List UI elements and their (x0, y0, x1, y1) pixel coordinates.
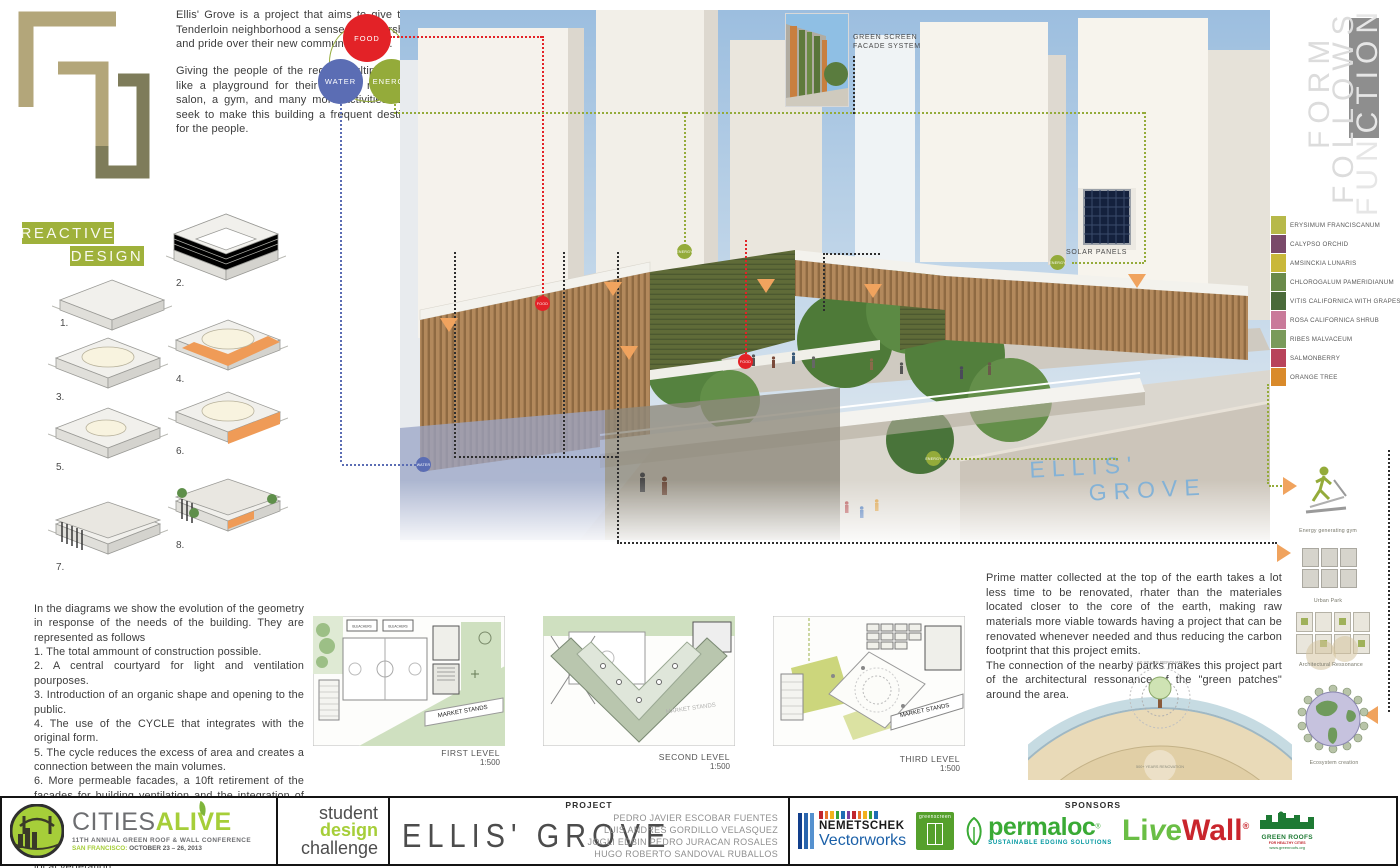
energy-dot-1-label: ENERGY (1049, 261, 1065, 265)
roof-arrow-3 (620, 346, 638, 360)
evolution-item: 2. A central courtyard for light and ven… (34, 659, 304, 688)
alive-wordmark: ALIVE (156, 808, 232, 836)
plant-name: SALMONBERRY (1290, 355, 1340, 362)
livewall-leaf-v: v (1149, 814, 1166, 847)
team-member: JOGLI EDBIN PEDRO JURACAN ROSALES (588, 837, 778, 849)
food-line-v2 (745, 240, 747, 358)
energy-dot-2: ENERGY (677, 244, 692, 259)
livewall-registered-mark: ® (1243, 821, 1250, 831)
design-word: DESIGN (71, 248, 144, 265)
guide-line-h1 (454, 456, 617, 458)
cities-alive-text: CITIESALIVE 11TH ANNUAL GREEN ROOF & WAL… (72, 810, 251, 852)
energy-dot-1: ENERGY (1050, 255, 1065, 270)
cycle-node-water: WATER (318, 59, 363, 104)
food-dot-2-label: FOOD (740, 360, 751, 364)
nemetschek-logo: NEMETSCHEK Vectorworks (798, 811, 906, 850)
evolution-item: 3. Introduction of an organic shape and … (34, 688, 304, 717)
water-line-v (340, 104, 342, 462)
reactive-word: REACTIVE (21, 225, 116, 242)
guide-line-v5 (853, 56, 855, 114)
energy-line-v2 (684, 112, 686, 246)
guide-line-v6 (823, 253, 825, 311)
step-diagram-6 (168, 380, 288, 460)
roof-arrow-1 (440, 318, 458, 332)
plant-thumb (1271, 330, 1286, 348)
permaloc-tagline: SUSTAINABLE EDGING SOLUTIONS (988, 840, 1112, 846)
nemetschek-color-bars (819, 811, 906, 819)
studio-logo (6, 4, 156, 194)
water-line-h (342, 464, 416, 466)
permaloc-logo: permaloc® SUSTAINABLE EDGING SOLUTIONS (964, 815, 1112, 846)
plant-thumb (1271, 273, 1286, 291)
water-dot: WATER (416, 457, 431, 472)
conference-line: 11TH ANNUAL GREEN ROOF & WALL CONFERENCE (72, 837, 251, 844)
greenscreen-grid-icon (927, 823, 943, 845)
plant-name: ORANGE TREE (1290, 374, 1338, 381)
greenroofs-skyline-icon (1260, 811, 1314, 829)
step-diagram-4 (168, 308, 288, 388)
challenge-word: challenge (301, 840, 378, 858)
bleachers-label: BLEACHERS (352, 625, 371, 629)
step-diagram-7 (48, 478, 168, 563)
resonance-label: Architectural Ressonance (1293, 662, 1369, 669)
guide-line-h3 (823, 253, 880, 255)
energy-line-h1 (394, 112, 1144, 114)
greenscreen-logo: greenscreen (916, 812, 954, 850)
project-heading: PROJECT (390, 800, 788, 810)
nemetschek-bar (798, 813, 802, 849)
project-box: PROJECT ELLIS' GROVE PEDRO JAVIER ESCOBA… (390, 796, 790, 866)
food-dot-2: FOOD (738, 354, 753, 369)
step-number: 2. (176, 278, 184, 289)
plan-level: FIRST LEVEL (395, 748, 500, 758)
dome-top-label: 5 - 60 YEARS RENOVATION (1131, 660, 1189, 665)
nemetschek-wordmark: NEMETSCHEK (819, 820, 906, 832)
livewall-li: Li (1122, 814, 1149, 847)
evolution-item: 1. The total ammount of construction pos… (34, 645, 304, 659)
green-screen-label-line2: FACADE SYSTEM (853, 42, 921, 51)
greenscreen-wordmark: greenscreen (916, 814, 954, 820)
second-level-plan: MARKET STANDS (543, 616, 735, 746)
bleachers-label: BLEACHERS (388, 625, 407, 629)
plan-scale: 1:500 (625, 762, 730, 771)
green-screen-photo (785, 13, 849, 107)
first-level-caption: FIRST LEVEL 1:500 (395, 748, 500, 767)
livewall-wall: Wall (1182, 814, 1243, 847)
fff-function: FUNCTION (1351, 16, 1385, 216)
plant-thumb (1271, 349, 1286, 367)
step-diagram-8 (168, 455, 288, 540)
plant-name: CALYPSO ORCHID (1290, 241, 1348, 248)
green-screen-label: GREEN SCREEN FACADE SYSTEM (853, 33, 921, 51)
plant-name: VITIS CALIFORNICA WITH GRAPES (1290, 298, 1400, 305)
food-dot-1-label: FOOD (537, 302, 548, 306)
plant-thumb (1271, 292, 1286, 310)
energy-line-h2 (1072, 262, 1144, 264)
permaloc-registered-mark: ® (1095, 824, 1100, 831)
plant-name: RIBES MALVACEUM (1290, 336, 1352, 343)
gym-arrow (1283, 477, 1297, 495)
cities-alive-box: CITIESALIVE 11TH ANNUAL GREEN ROOF & WAL… (0, 796, 278, 866)
dome-core-label: 500+ YEARS RENOVATION (1136, 765, 1184, 769)
water-dot-label: WATER (417, 463, 431, 467)
sponsors-heading: SPONSORS (790, 800, 1396, 810)
team-member: HUGO ROBERTO SANDOVAL RUBALLOS (588, 849, 778, 861)
nemetschek-bar (810, 813, 814, 849)
plant-name: AMSINCKIA LUNARIS (1290, 260, 1356, 267)
team-member: LUIS ANDRES GORDILLO VELASQUEZ (588, 825, 778, 837)
green-patch-blob (1332, 636, 1358, 662)
cycle-node-food: FOOD (343, 14, 391, 62)
sponsors-box: SPONSORS NEMETSCHEK Vectorworks gree (790, 796, 1398, 866)
plan-scale: 1:500 (855, 764, 960, 773)
first-level-plan: BLEACHERS BLEACHERS MARKET STANDS (313, 616, 505, 746)
presentation-board: Ellis' Grove is a project that aims to g… (0, 0, 1400, 868)
plant-name: ERYSIMUM FRANCISCANUM (1290, 222, 1380, 229)
livewall-e: e (1165, 814, 1182, 847)
energy-dot-3-label: ENERGY (925, 457, 941, 461)
urban-park-label: Urban Park (1288, 598, 1368, 605)
nemetschek-bar (804, 813, 808, 849)
reactive-box: REACTIVE (22, 222, 114, 244)
energy-gym-icon (1300, 460, 1352, 522)
energy-dot-3: ENERGY (926, 451, 941, 466)
greenroofs-logo: GREEN ROOFS FOR HEALTHY CITIES www.green… (1259, 811, 1315, 850)
energy-line-v1 (1144, 112, 1146, 262)
roof-arrow-2 (604, 282, 622, 296)
building-sign: ELLIS' GROVE (1029, 447, 1212, 509)
plant-thumb (1271, 235, 1286, 253)
third-level-caption: THIRD LEVEL 1:500 (855, 754, 960, 773)
roof-arrow-4 (757, 279, 775, 293)
second-level-caption: SECOND LEVEL 1:500 (625, 752, 730, 771)
greenroofs-url: www.greenroofs.org (1259, 845, 1315, 850)
ecosystem-globe (1296, 680, 1370, 758)
evolution-item: 4. The use of the CYCLE that integrates … (34, 717, 304, 746)
energy-dot-2-label: ENERGY (676, 250, 692, 254)
water-label: WATER (325, 77, 356, 86)
step-diagram-3 (48, 326, 168, 406)
step-number: 8. (176, 540, 184, 551)
plant-thumb (1271, 216, 1286, 234)
guide-line-v2 (563, 252, 565, 458)
earth-renovation-diagram: 5 - 60 YEARS RENOVATION 500+ YEARS RENOV… (1028, 652, 1292, 780)
step-number: 5. (56, 462, 64, 473)
plant-thumb (1271, 254, 1286, 272)
conference-dates: OCTOBER 23 – 26, 2013 (127, 845, 201, 852)
green-screen-label-line1: GREEN SCREEN (853, 33, 921, 42)
cities-alive-logo-icon (10, 804, 64, 858)
design-box: DESIGN (70, 246, 144, 266)
food-dot-1: FOOD (535, 296, 550, 311)
plant-name: CHLOROGALUM PAMERIDIANUM (1290, 279, 1394, 286)
plan-scale: 1:500 (395, 758, 500, 767)
permaloc-wordmark: permaloc (988, 813, 1095, 841)
urban-park-tiles (1302, 548, 1357, 588)
roof-arrow-5 (864, 284, 882, 298)
student-design-challenge-box: student design challenge (278, 796, 390, 866)
livewall-logo: LiveWall® (1122, 816, 1249, 846)
prime-paragraph-1: Prime matter collected at the top of the… (986, 571, 1282, 659)
roof-arrow-6 (1128, 274, 1146, 288)
solar-panel-image (1078, 188, 1136, 250)
plant-thumb (1271, 368, 1286, 386)
team-member: PEDRO JAVIER ESCOBAR FUENTES (588, 813, 778, 825)
solar-panels-label: SOLAR PANELS (1066, 248, 1127, 257)
step-number: 7. (56, 562, 64, 573)
third-level-plan: MARKET STANDS (773, 616, 965, 746)
food-line-v1 (542, 36, 544, 300)
step-diagram-5 (48, 396, 168, 476)
guide-line-v1 (454, 252, 456, 458)
greenroofs-wordmark: GREEN ROOFS (1259, 834, 1315, 841)
energy-line-h3 (938, 458, 1118, 460)
evolution-item: 5. The cycle reduces the excess of area … (34, 746, 304, 775)
guide-line-h2 (617, 542, 1277, 544)
energy-gym-label: Energy generating gym (1288, 528, 1368, 535)
team-names: PEDRO JAVIER ESCOBAR FUENTES LUIS ANDRES… (588, 813, 778, 861)
plant-name: ROSA CALIFORNICA SHRUB (1290, 317, 1379, 324)
energy-line-v3 (1267, 384, 1269, 484)
permaloc-leaf-icon (964, 817, 984, 845)
food-line-h (390, 36, 542, 38)
cities-wordmark: CITIES (72, 808, 156, 836)
plant-thumb (1271, 311, 1286, 329)
footer: CITIESALIVE 11TH ANNUAL GREEN ROOF & WAL… (0, 796, 1398, 866)
vectorworks-wordmark: Vectorworks (819, 832, 906, 850)
urban-park-arrow (1277, 544, 1291, 562)
plan-level: SECOND LEVEL (625, 752, 730, 762)
plan-level: THIRD LEVEL (855, 754, 960, 764)
conference-city: SAN FRANCISCO: (72, 845, 127, 852)
guide-line-v4 (1388, 450, 1390, 712)
food-label: FOOD (354, 34, 380, 43)
evolution-intro: In the diagrams we show the evolution of… (34, 602, 304, 645)
ecosystem-label: Ecosystem creation (1292, 760, 1376, 767)
sponsor-logos: NEMETSCHEK Vectorworks greenscreen (798, 811, 1392, 850)
